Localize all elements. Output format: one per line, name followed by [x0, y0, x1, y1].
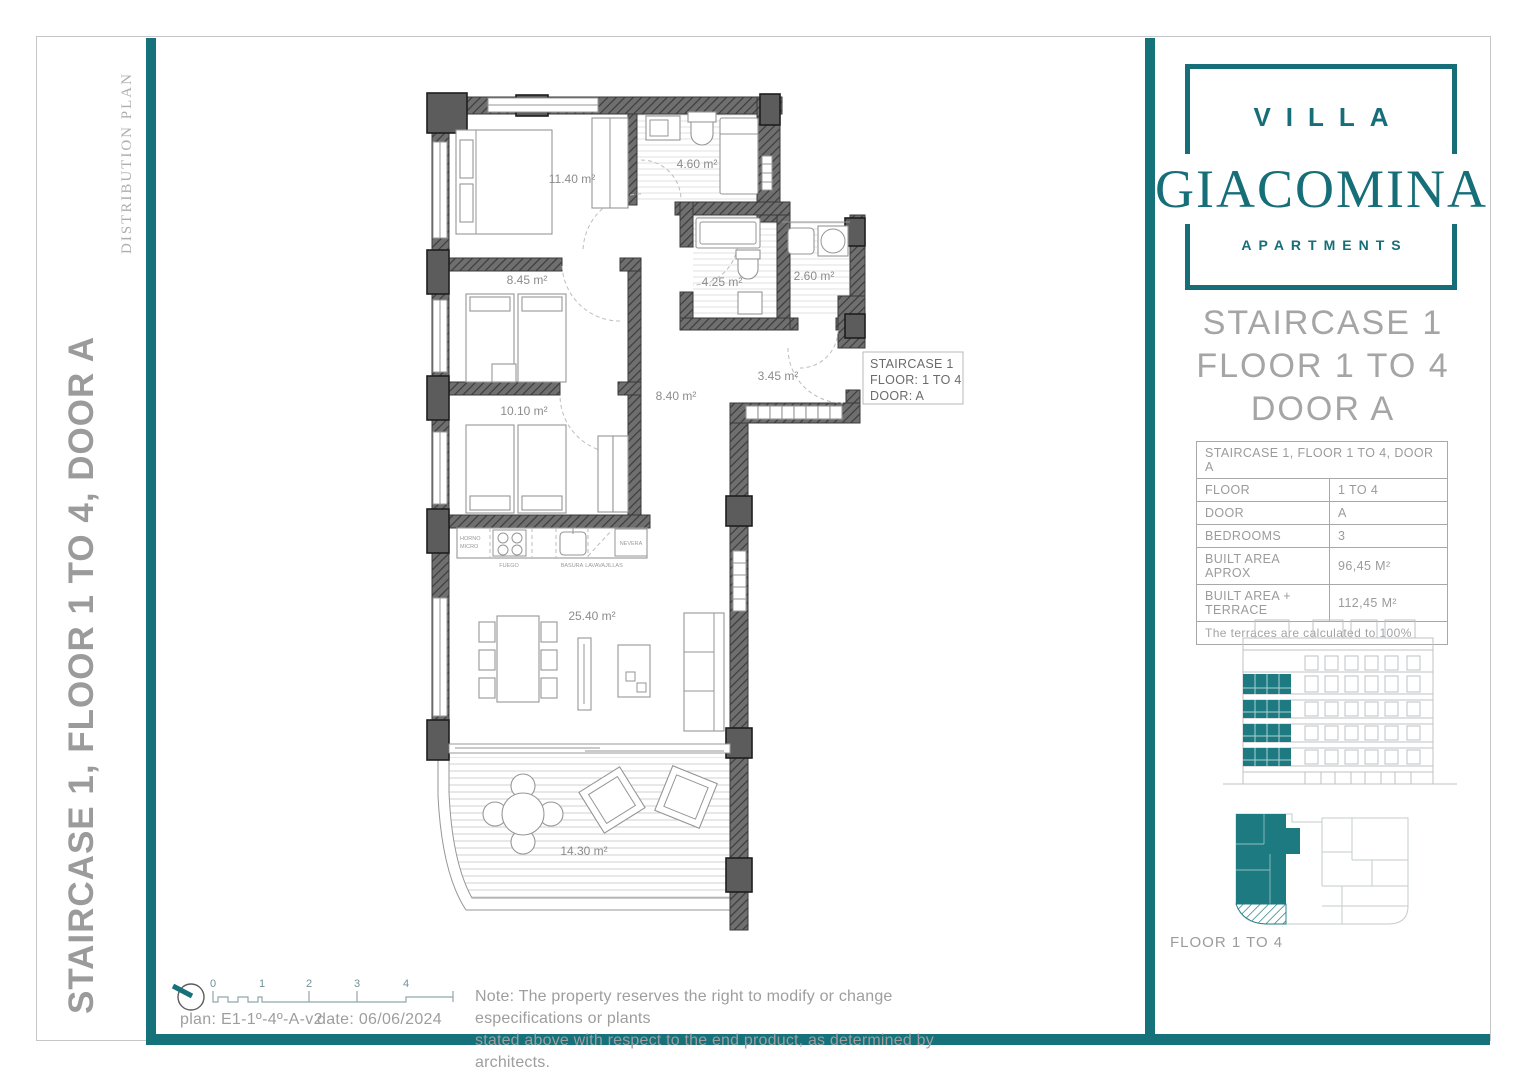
- spec-label-door: DOOR: [1197, 502, 1330, 525]
- spec-label-built-area: BUILT AREA APROX: [1197, 548, 1330, 585]
- area-bathroom-2: 4.25 m²: [702, 275, 743, 289]
- area-living: 25.40 m²: [568, 609, 615, 623]
- right-teal-bar: [1145, 38, 1155, 1044]
- spec-value-door: A: [1330, 502, 1448, 525]
- area-entrance: 3.45 m²: [758, 369, 799, 383]
- spec-value-built-area: 96,45 M²: [1330, 548, 1448, 585]
- key-plan-floor-label: FLOOR 1 TO 4: [1170, 934, 1283, 951]
- kitchen-label-oven-1: HORNO: [460, 536, 481, 542]
- spec-row-floor: FLOOR 1 TO 4: [1197, 479, 1448, 502]
- scale-2: 2: [306, 978, 312, 990]
- living-furniture: [479, 613, 724, 731]
- disclaimer-note: Note: The property reserves the right to…: [475, 986, 995, 1074]
- spec-label-bedrooms: BEDROOMS: [1197, 525, 1330, 548]
- disclaimer-line1: Note: The property reserves the right to…: [475, 986, 995, 1030]
- spec-value-floor: 1 TO 4: [1330, 479, 1448, 502]
- brand-villa: VILLA: [1190, 102, 1452, 133]
- key-plan-highlight: [1236, 814, 1300, 924]
- floor-plan: HORNO MICRO FUEGO BASURA LAVAVAJILLAS NE…: [156, 37, 1145, 1032]
- area-laundry: 2.60 m²: [794, 269, 835, 283]
- kitchen: HORNO MICRO FUEGO BASURA LAVAVAJILLAS NE…: [457, 528, 647, 569]
- brand-name: GIACOMINA: [1155, 154, 1487, 224]
- scale-0: 0: [210, 978, 216, 990]
- plan-date: date: 06/06/2024: [317, 1011, 442, 1029]
- panel-title: STAIRCASE 1 FLOOR 1 TO 4 DOOR A: [1155, 302, 1491, 431]
- key-plan: [1222, 806, 1422, 946]
- panel-title-line2: FLOOR 1 TO 4: [1155, 345, 1491, 388]
- kitchen-label-oven-2: MICRO: [460, 544, 479, 550]
- plan-reference: plan: E1-1º-4º-A-v2: [180, 1011, 323, 1029]
- bedroom-2-furniture: [466, 294, 566, 382]
- spec-header-row: STAIRCASE 1, FLOOR 1 TO 4, DOOR A: [1197, 442, 1448, 479]
- scale-ruler: [213, 991, 453, 1002]
- panel-title-line3: DOOR A: [1155, 388, 1491, 431]
- disclaimer-line2: stated above with respect to the end pro…: [475, 1030, 995, 1074]
- left-teal-bar: [146, 38, 156, 1044]
- scale-1: 1: [259, 978, 265, 990]
- staircase-info-box: STAIRCASE 1 FLOOR: 1 TO 4 DOOR: A: [863, 352, 963, 404]
- kitchen-label-fridge: NEVERA: [620, 541, 643, 547]
- area-bedroom-2: 8.45 m²: [507, 273, 548, 287]
- kitchen-label-sink: BASURA: [561, 563, 584, 569]
- elevation-highlight: [1243, 674, 1291, 766]
- spec-row-built-area: BUILT AREA APROX 96,45 M²: [1197, 548, 1448, 585]
- panel-title-line1: STAIRCASE 1: [1155, 302, 1491, 345]
- area-terrace: 14.30 m²: [560, 844, 607, 858]
- staircase-box-line2: FLOOR: 1 TO 4: [870, 373, 962, 387]
- area-bedroom-main: 11.40 m²: [549, 172, 595, 186]
- scale-3: 3: [354, 978, 360, 990]
- staircase-box-line3: DOOR: A: [870, 389, 925, 403]
- page: DISTRIBUTION PLAN STAIRCASE 1, FLOOR 1 T…: [0, 0, 1527, 1080]
- spec-header: STAIRCASE 1, FLOOR 1 TO 4, DOOR A: [1197, 442, 1448, 479]
- bed-main: [456, 118, 628, 234]
- scale-numbers: 0 1 2 3 4: [210, 978, 409, 990]
- spec-label-floor: FLOOR: [1197, 479, 1330, 502]
- area-bathroom-top: 4.60 m²: [677, 157, 718, 171]
- entrance-closet: [746, 406, 842, 419]
- area-bedroom-3: 10.10 m²: [500, 404, 547, 418]
- area-hallway: 8.40 m²: [656, 389, 697, 403]
- building-elevation: [1215, 608, 1465, 793]
- spec-row-bedrooms: BEDROOMS 3: [1197, 525, 1448, 548]
- brand-logo: VILLA GIACOMINA APARTMENTS: [1185, 64, 1457, 290]
- terrace-deck: [438, 750, 748, 910]
- scale-4: 4: [403, 978, 409, 990]
- side-title: STAIRCASE 1, FLOOR 1 TO 4, DOOR A: [62, 234, 102, 1014]
- kitchen-label-hob: FUEGO: [499, 563, 519, 569]
- spec-row-door: DOOR A: [1197, 502, 1448, 525]
- distribution-plan-watermark: DISTRIBUTION PLAN: [119, 34, 136, 254]
- staircase-box-line1: STAIRCASE 1: [870, 357, 954, 371]
- bedroom-3-furniture: [466, 425, 628, 513]
- brand-subtitle: APARTMENTS: [1190, 237, 1452, 253]
- elevation-windows: [1305, 656, 1420, 784]
- spec-value-bedrooms: 3: [1330, 525, 1448, 548]
- kitchen-label-dishwasher: LAVAVAJILLAS: [585, 563, 623, 569]
- compass-icon: [173, 984, 204, 1010]
